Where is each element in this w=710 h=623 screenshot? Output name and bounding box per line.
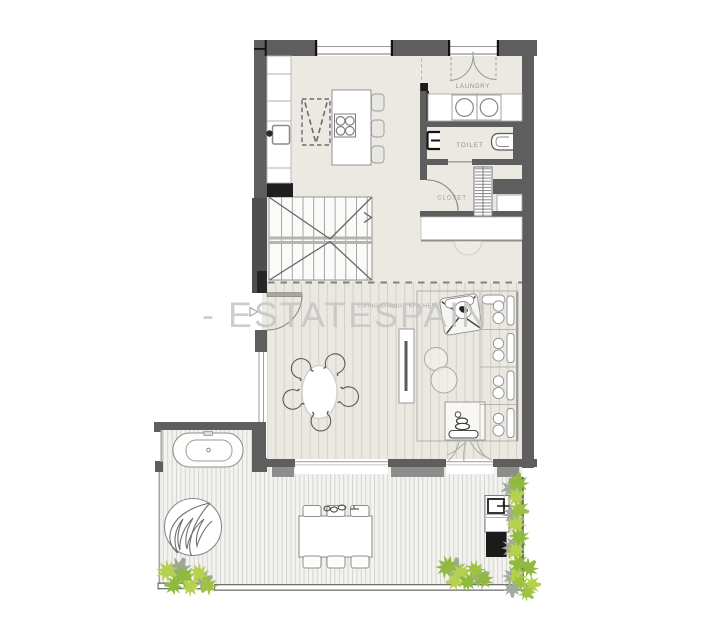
- svg-text:LAUNDRY: LAUNDRY: [456, 84, 490, 90]
- svg-text:TOILET: TOILET: [456, 142, 484, 149]
- svg-text:- ESTATESPAIN: - ESTATESPAIN: [202, 295, 489, 335]
- svg-text:CLOSET: CLOSET: [437, 195, 467, 202]
